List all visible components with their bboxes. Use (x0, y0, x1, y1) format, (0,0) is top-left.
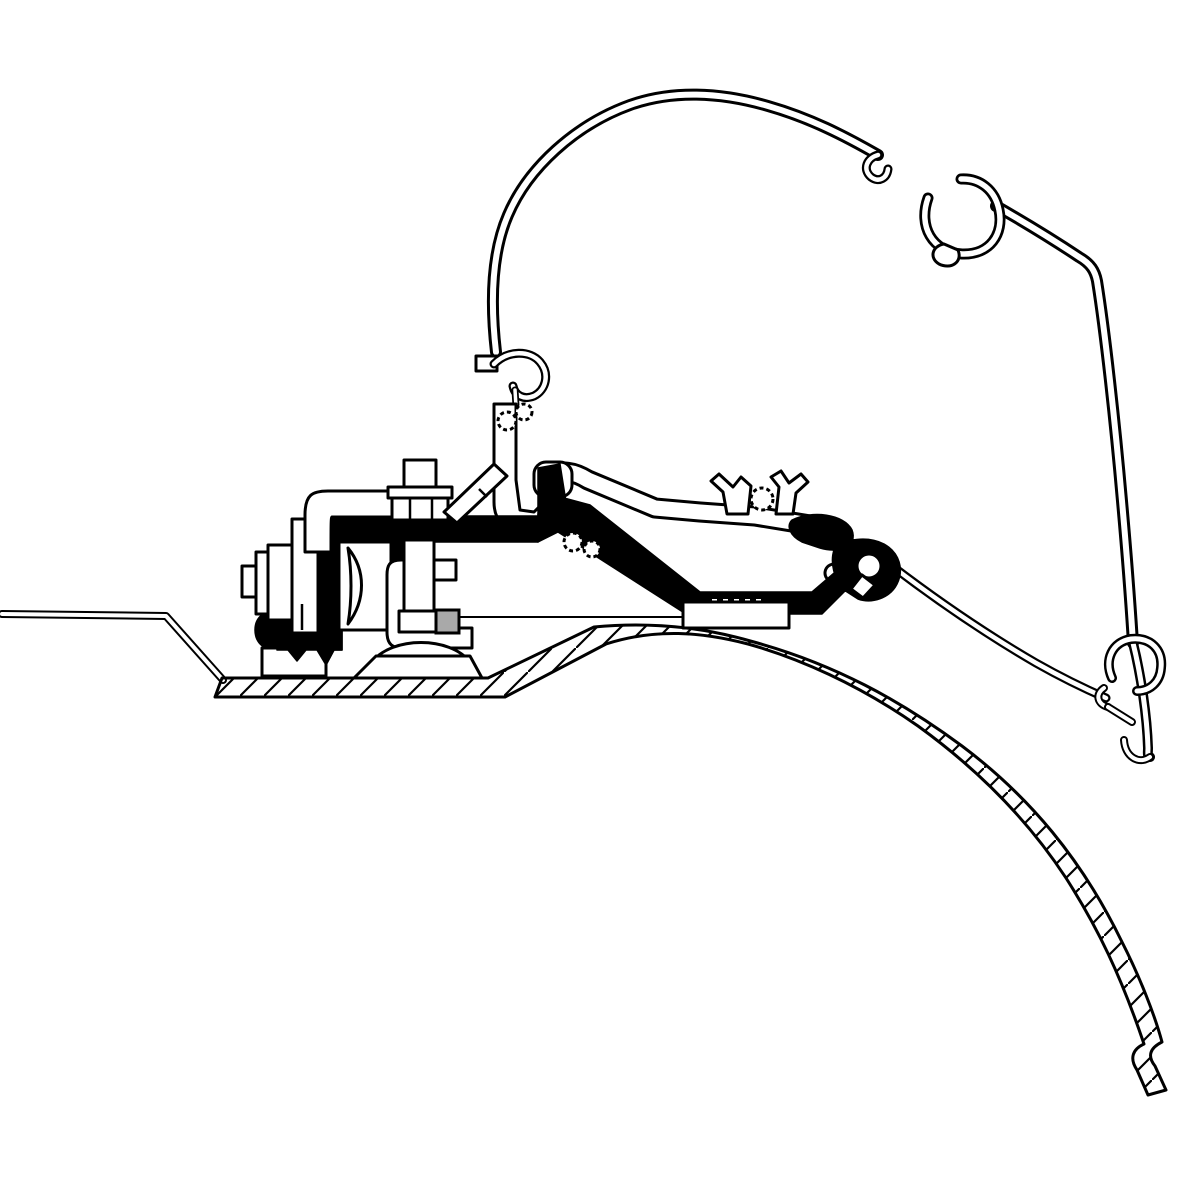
extrusion-screw-boss (564, 533, 582, 551)
claw-slide-block (399, 611, 436, 632)
rail-screw-boss (751, 488, 773, 510)
clip-foot (933, 244, 959, 266)
leg-screw-boss (516, 404, 532, 420)
vertical-bolt-tip (404, 460, 436, 488)
claw-strap-end (436, 610, 459, 633)
page-background (0, 0, 1200, 1200)
clamp-lens-washer (339, 542, 391, 630)
support-pedestal (354, 656, 482, 678)
leg-screw-boss (498, 412, 516, 430)
hex-nut (392, 498, 448, 520)
extrusion-screw-boss (584, 541, 600, 557)
nut-washer (388, 487, 452, 498)
base-plate (683, 602, 789, 628)
extrusion-rail-seat (538, 464, 566, 516)
technical-diagram (0, 0, 1200, 1200)
